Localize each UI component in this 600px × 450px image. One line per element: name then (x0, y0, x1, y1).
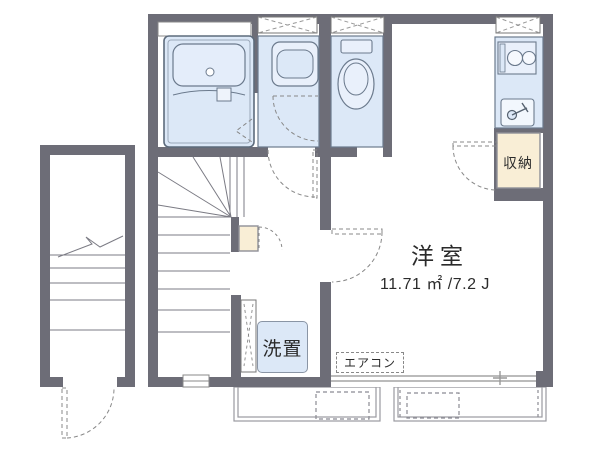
washbasin-icon (272, 42, 318, 86)
closet-door-arc (453, 142, 497, 190)
straight-steps (158, 235, 230, 332)
toilet-room (331, 36, 383, 147)
room-area-label: 11.71 ㎡ /7.2 J (355, 270, 515, 294)
stair-break-symbol (58, 236, 123, 257)
exterior-staircase (40, 145, 135, 438)
high-window-toilet (331, 17, 384, 33)
kitchen-counter (495, 37, 543, 128)
small-window-under-stairs (183, 375, 209, 387)
balcony-left (234, 387, 380, 421)
exterior-entry-opening (63, 376, 117, 388)
bathtub-icon (173, 44, 245, 86)
washer-slot-label: 洗置 (257, 321, 308, 373)
sliding-window-main (331, 371, 540, 387)
sink-icon (501, 99, 534, 126)
storage-door-arc (259, 227, 282, 250)
balcony-right (394, 387, 546, 421)
wall-corner-block (536, 371, 553, 387)
high-window-washroom (258, 17, 317, 33)
bath-step (217, 88, 231, 101)
high-window-kitchen (496, 17, 540, 33)
floor-plan: 洋室 11.71 ㎡ /7.2 J エアコン 洗置 収納 (0, 0, 600, 450)
floor-plan-drawing (0, 0, 600, 450)
hall-door-arc (268, 150, 317, 198)
exterior-stair-steps (50, 236, 125, 330)
aircon-label: エアコン (336, 352, 404, 373)
winder-steps (158, 157, 231, 217)
top-landing-lines (237, 157, 244, 217)
toilet-icon (338, 40, 374, 109)
bathroom-unit (164, 36, 254, 147)
stove-icon (498, 42, 536, 74)
washing-machine-slot-window (241, 300, 256, 372)
entry-door-arc (62, 388, 114, 438)
washbasin-room (258, 36, 319, 147)
closet-label: 収納 (494, 153, 542, 173)
under-stair-storage (239, 226, 282, 251)
bathroom-window (158, 22, 251, 36)
room-label: 洋室 (390, 237, 490, 271)
